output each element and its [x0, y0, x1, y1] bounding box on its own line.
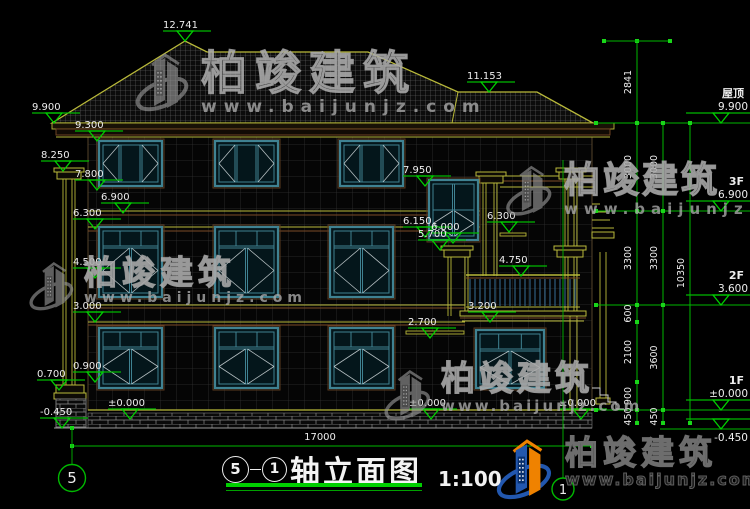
elevation-value: 6.150: [403, 216, 432, 227]
roof: [52, 41, 614, 137]
elevation-value: 0.900: [73, 361, 102, 372]
title-axis-start-bubble: 5: [222, 456, 249, 483]
floor-elevation: 9.900: [718, 101, 748, 113]
dimension-chain: 10350: [676, 121, 692, 425]
elevation-value: 9.300: [75, 120, 104, 131]
elevation-value: 4.500: [73, 257, 102, 268]
window: [97, 326, 164, 390]
elevation-value: ±0.000: [409, 398, 446, 409]
floor-elevation: ±0.000: [709, 388, 748, 400]
title-underline-thin: [226, 490, 422, 491]
elevation-value: 9.900: [32, 102, 61, 113]
elevation-value: 2.700: [408, 317, 437, 328]
elevation-value: 3.200: [468, 301, 497, 312]
floor-level-marker: 屋顶9.900: [596, 87, 750, 123]
elevation-marker: 12.741: [163, 20, 211, 41]
floor-elevation: 3.600: [718, 283, 748, 295]
dimension-value: 450: [623, 407, 634, 425]
ledge-6300: [500, 233, 526, 236]
window: [213, 139, 280, 188]
title-axis-end-bubble: 1: [262, 457, 287, 482]
dimension-value: 450: [649, 407, 660, 425]
floor-elevation: 6.900: [718, 189, 748, 201]
elevation-value: 5.700: [418, 229, 447, 240]
cad-canvas: 12.74111.1539.9009.3008.2507.8006.9006.3…: [0, 0, 750, 505]
elevation-value: 11.153: [467, 71, 502, 82]
floor-level-marker: 1F±0.000: [596, 374, 750, 410]
floor-name: 屋顶: [722, 87, 744, 100]
axis-bubble-left: 5: [59, 428, 86, 492]
floor-elevation: -0.450: [714, 432, 748, 444]
elevation-value: 6.300: [73, 208, 102, 219]
elevation-value: -0.450: [40, 407, 72, 418]
title-dash: [250, 469, 261, 470]
elevation-drawing: 12.74111.1539.9009.3008.2507.8006.9006.3…: [0, 0, 750, 505]
dimension-value: 3600: [649, 345, 660, 369]
window: [338, 139, 405, 188]
elevation-value: 12.741: [163, 20, 198, 31]
window: [213, 225, 280, 299]
dimension-value: 3300: [649, 246, 660, 270]
dimension-value: 3300: [623, 246, 634, 270]
elevation-value: 7.950: [403, 165, 432, 176]
axis-number: 5: [67, 469, 77, 487]
dimension-chain: 300033003600450: [649, 121, 665, 426]
title-scale: 1:100: [438, 467, 502, 491]
dimension-value: 2100: [623, 340, 634, 364]
dimension-value: 2841: [623, 70, 634, 94]
window: [328, 225, 395, 299]
floor-name: 3F: [729, 175, 744, 188]
dimension-value: 10350: [676, 258, 687, 288]
elevation-value: 6.300: [487, 211, 516, 222]
axis-number: 1: [559, 483, 567, 498]
window: [97, 225, 164, 299]
elevation-value: 4.750: [499, 255, 528, 266]
floor-level-marker: 2F3.600: [596, 269, 750, 305]
floor-name: 1F: [729, 374, 744, 387]
dimension-value: 3000: [649, 155, 660, 179]
floor-name: 2F: [729, 269, 744, 282]
dimension-value: 17000: [304, 432, 336, 443]
elevation-value: ±0.000: [559, 398, 596, 409]
dimension-value: 3000: [623, 155, 634, 179]
elevation-marker: 11.153: [467, 71, 515, 92]
elevation-value: 7.800: [75, 169, 104, 180]
window: [328, 326, 395, 390]
elevation-value: ±0.000: [108, 398, 145, 409]
elevation-value: 0.700: [37, 369, 66, 380]
dimension-horizontal: 17000: [70, 432, 594, 448]
title-underline: [226, 483, 422, 487]
elevation-value: 8.250: [41, 150, 70, 161]
floor-level-marker: 3F6.900: [596, 175, 750, 211]
window: [213, 326, 280, 390]
dimension-value: 900: [623, 387, 634, 405]
elevation-value: 6.900: [101, 192, 130, 203]
dimension-chain: 2841300033006002100900450: [623, 39, 639, 426]
elevation-value: 3.000: [73, 301, 102, 312]
window: [97, 139, 164, 188]
floor-level-marker: -0.450: [660, 419, 750, 444]
dimension-value: 600: [623, 304, 634, 322]
window: [474, 328, 546, 390]
